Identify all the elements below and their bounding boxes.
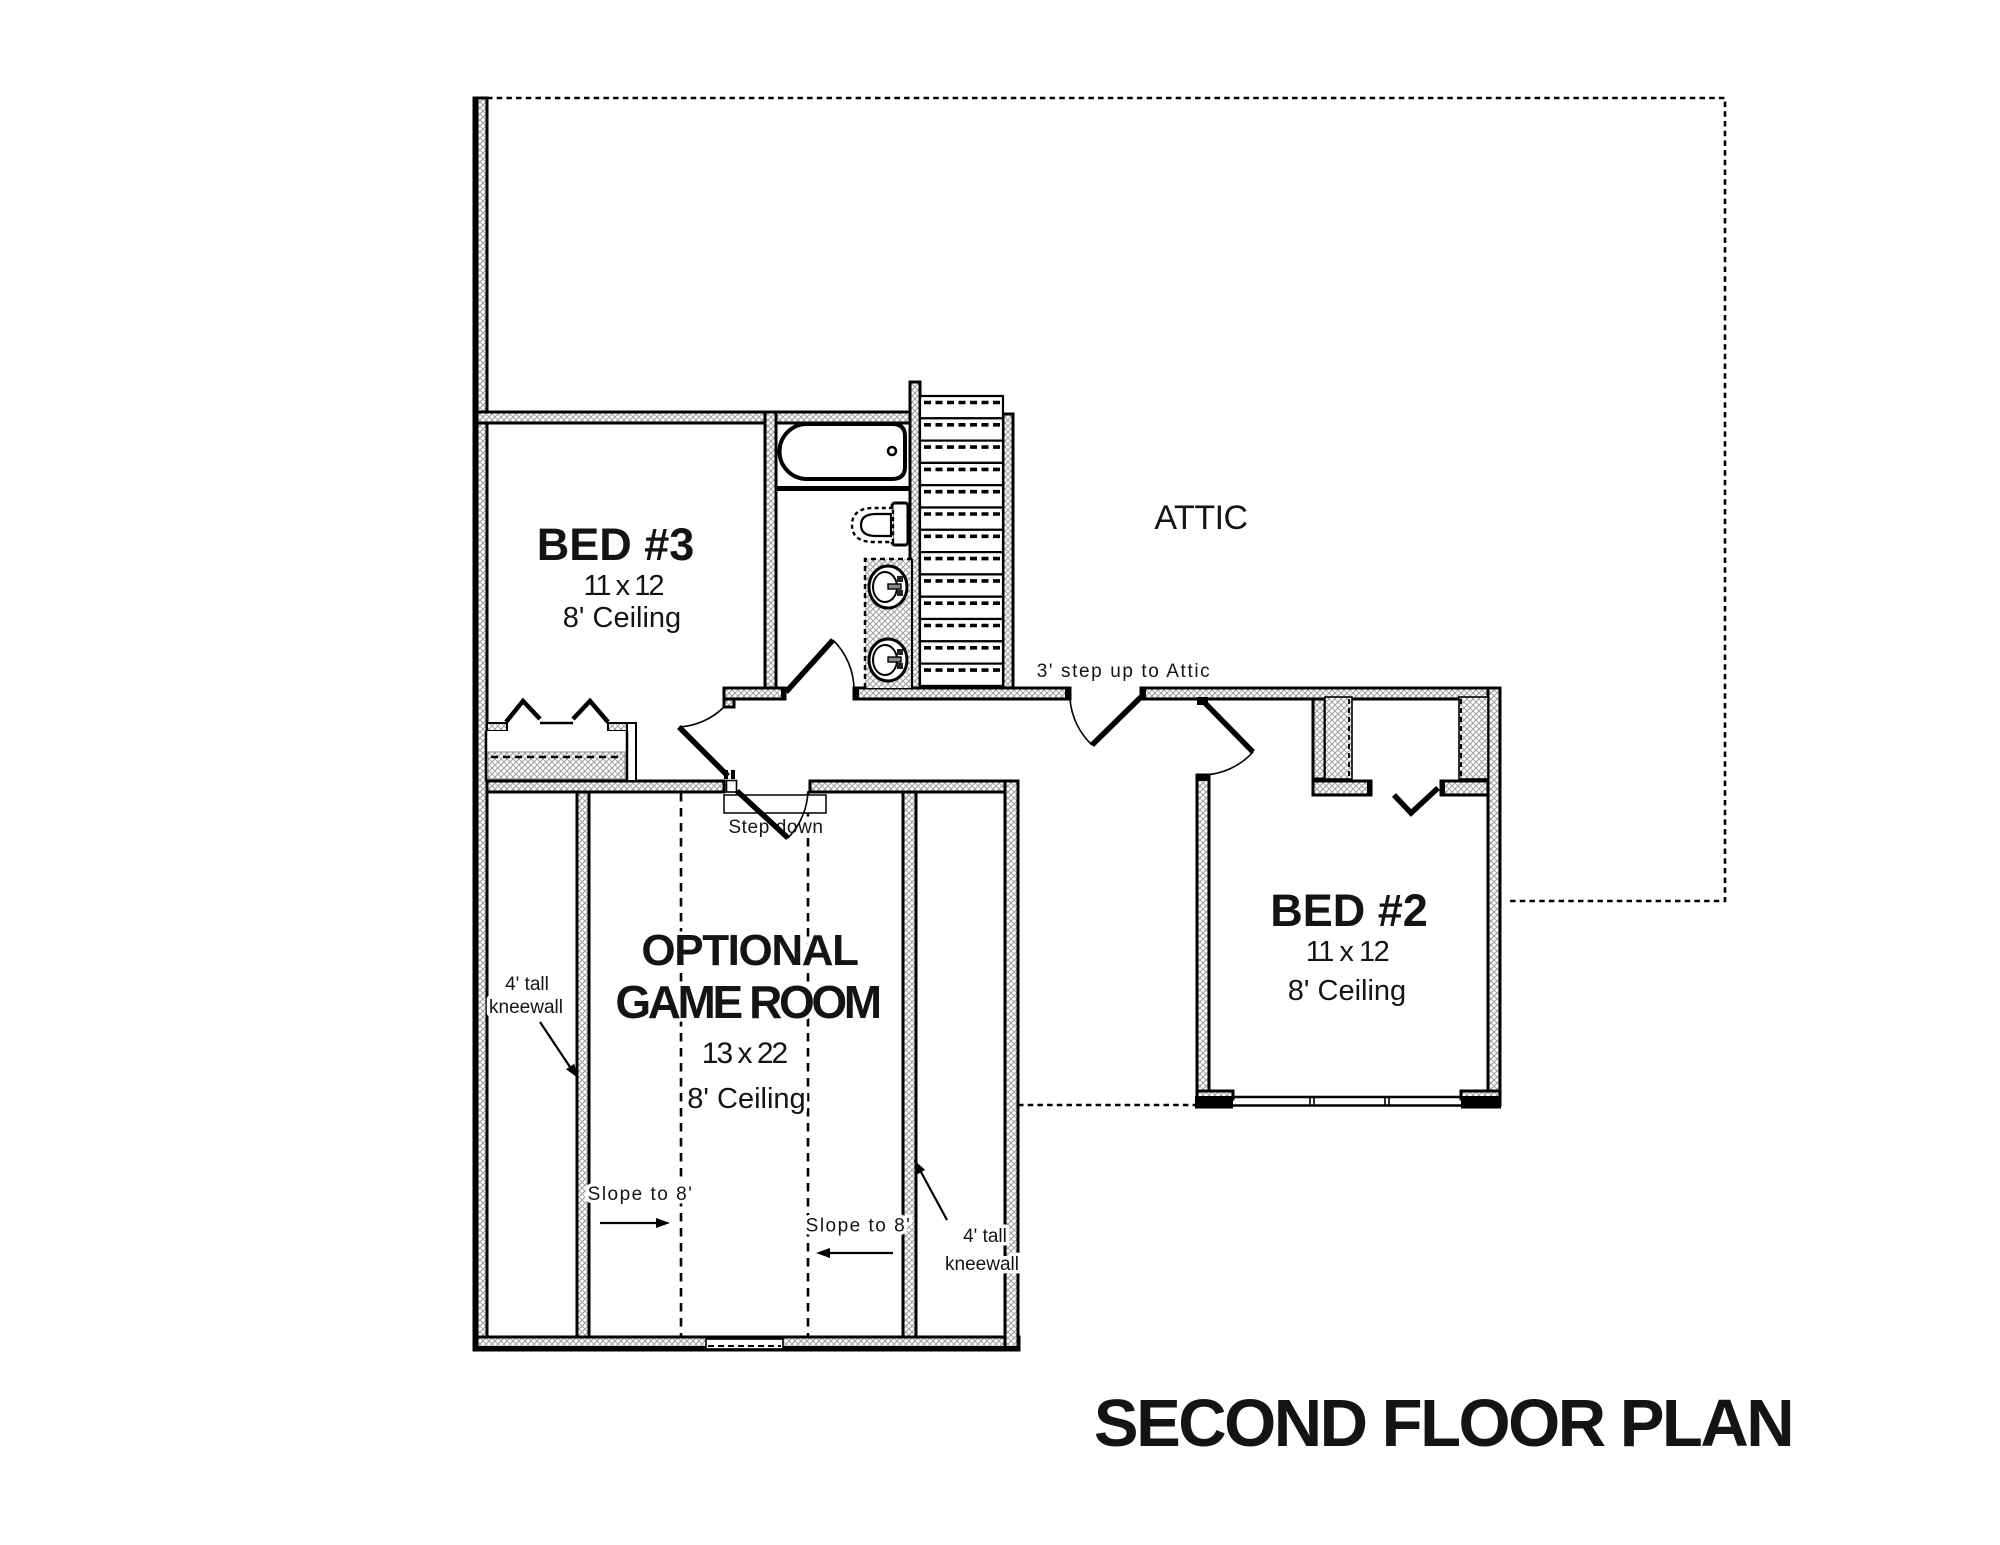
svg-text:13 x 22: 13 x 22 bbox=[702, 1037, 788, 1070]
svg-text:8' Ceiling: 8' Ceiling bbox=[1288, 975, 1406, 1007]
svg-text:Slope to 8': Slope to 8' bbox=[588, 1184, 694, 1205]
svg-text:4' tall: 4' tall bbox=[505, 974, 549, 995]
svg-text:8' Ceiling: 8' Ceiling bbox=[563, 602, 681, 634]
svg-text:GAME ROOM: GAME ROOM bbox=[615, 976, 879, 1028]
svg-text:4' tall: 4' tall bbox=[963, 1226, 1007, 1247]
svg-text:3' step up to Attic: 3' step up to Attic bbox=[1037, 661, 1212, 682]
svg-text:ATTIC: ATTIC bbox=[1154, 499, 1247, 537]
svg-text:BED #3: BED #3 bbox=[537, 519, 695, 570]
svg-text:8' Ceiling: 8' Ceiling bbox=[687, 1083, 805, 1115]
svg-text:11 x 12: 11 x 12 bbox=[1306, 936, 1389, 968]
svg-text:SECOND FLOOR PLAN: SECOND FLOOR PLAN bbox=[1094, 1386, 1792, 1461]
svg-text:kneewall: kneewall bbox=[489, 997, 563, 1018]
svg-text:11 x 12: 11 x 12 bbox=[584, 570, 664, 602]
svg-text:OPTIONAL: OPTIONAL bbox=[641, 926, 858, 975]
svg-text:BED #2: BED #2 bbox=[1270, 885, 1428, 936]
svg-text:kneewall: kneewall bbox=[945, 1254, 1019, 1275]
svg-text:Slope to 8': Slope to 8' bbox=[806, 1216, 912, 1237]
